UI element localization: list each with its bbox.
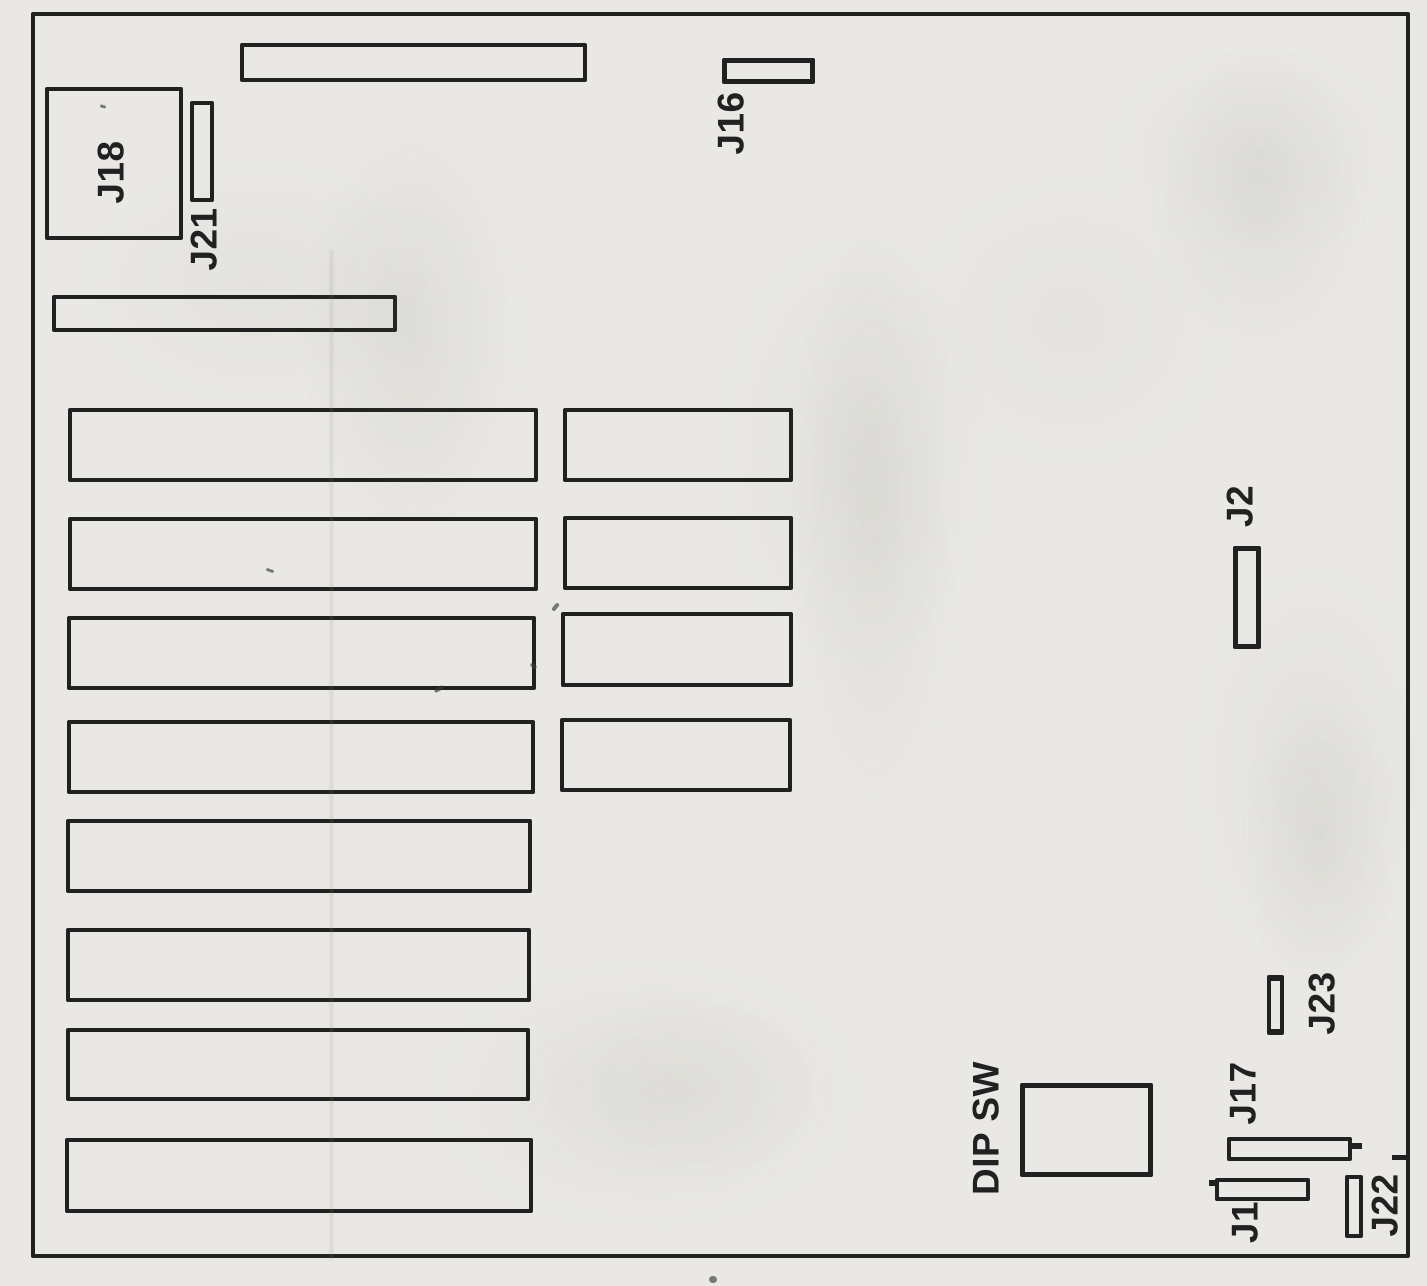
connector-bar-left: [52, 295, 397, 332]
j16-connector: [722, 58, 815, 84]
scan-speck: [708, 1275, 717, 1283]
j21-label: J21: [186, 207, 223, 270]
j23-connector: [1267, 975, 1284, 1035]
j1-key-tick: [1209, 1180, 1216, 1186]
slot-long-7: [66, 1028, 530, 1101]
slot-long-2: [68, 517, 538, 591]
j1-connector: [1215, 1178, 1310, 1201]
dip-switch-label: DIP SW: [968, 1061, 1005, 1195]
slot-short-1: [563, 408, 793, 482]
j16-label: J16: [713, 91, 750, 154]
j22-label: J22: [1367, 1173, 1404, 1236]
j17-connector: [1227, 1137, 1352, 1161]
board-edge-notch: [1392, 1155, 1410, 1160]
slot-short-2: [563, 516, 793, 590]
slot-long-5: [66, 819, 532, 893]
j17-label: J17: [1225, 1061, 1262, 1124]
slot-long-6: [66, 928, 531, 1002]
slot-short-4: [560, 718, 792, 792]
j2-label: J2: [1222, 485, 1259, 527]
j22-connector: [1345, 1175, 1363, 1238]
slot-long-8: [65, 1138, 533, 1213]
j21-connector: [190, 101, 214, 202]
scanned-page: J16 J18 J21 J2 J23 DIP SW J17 J1 J22: [0, 0, 1427, 1286]
j23-label: J23: [1304, 971, 1341, 1034]
dip-switch-box: [1020, 1083, 1153, 1177]
slot-long-1: [68, 408, 538, 482]
j2-connector: [1233, 546, 1261, 649]
slot-short-3: [561, 612, 793, 687]
j1-label: J1: [1227, 1201, 1264, 1243]
slot-long-3: [67, 616, 536, 690]
connector-bar-top: [240, 43, 587, 82]
j18-label: J18: [93, 140, 130, 203]
slot-long-4: [67, 720, 535, 794]
paper-crease: [330, 250, 333, 1260]
j17-key-tick: [1350, 1143, 1362, 1149]
